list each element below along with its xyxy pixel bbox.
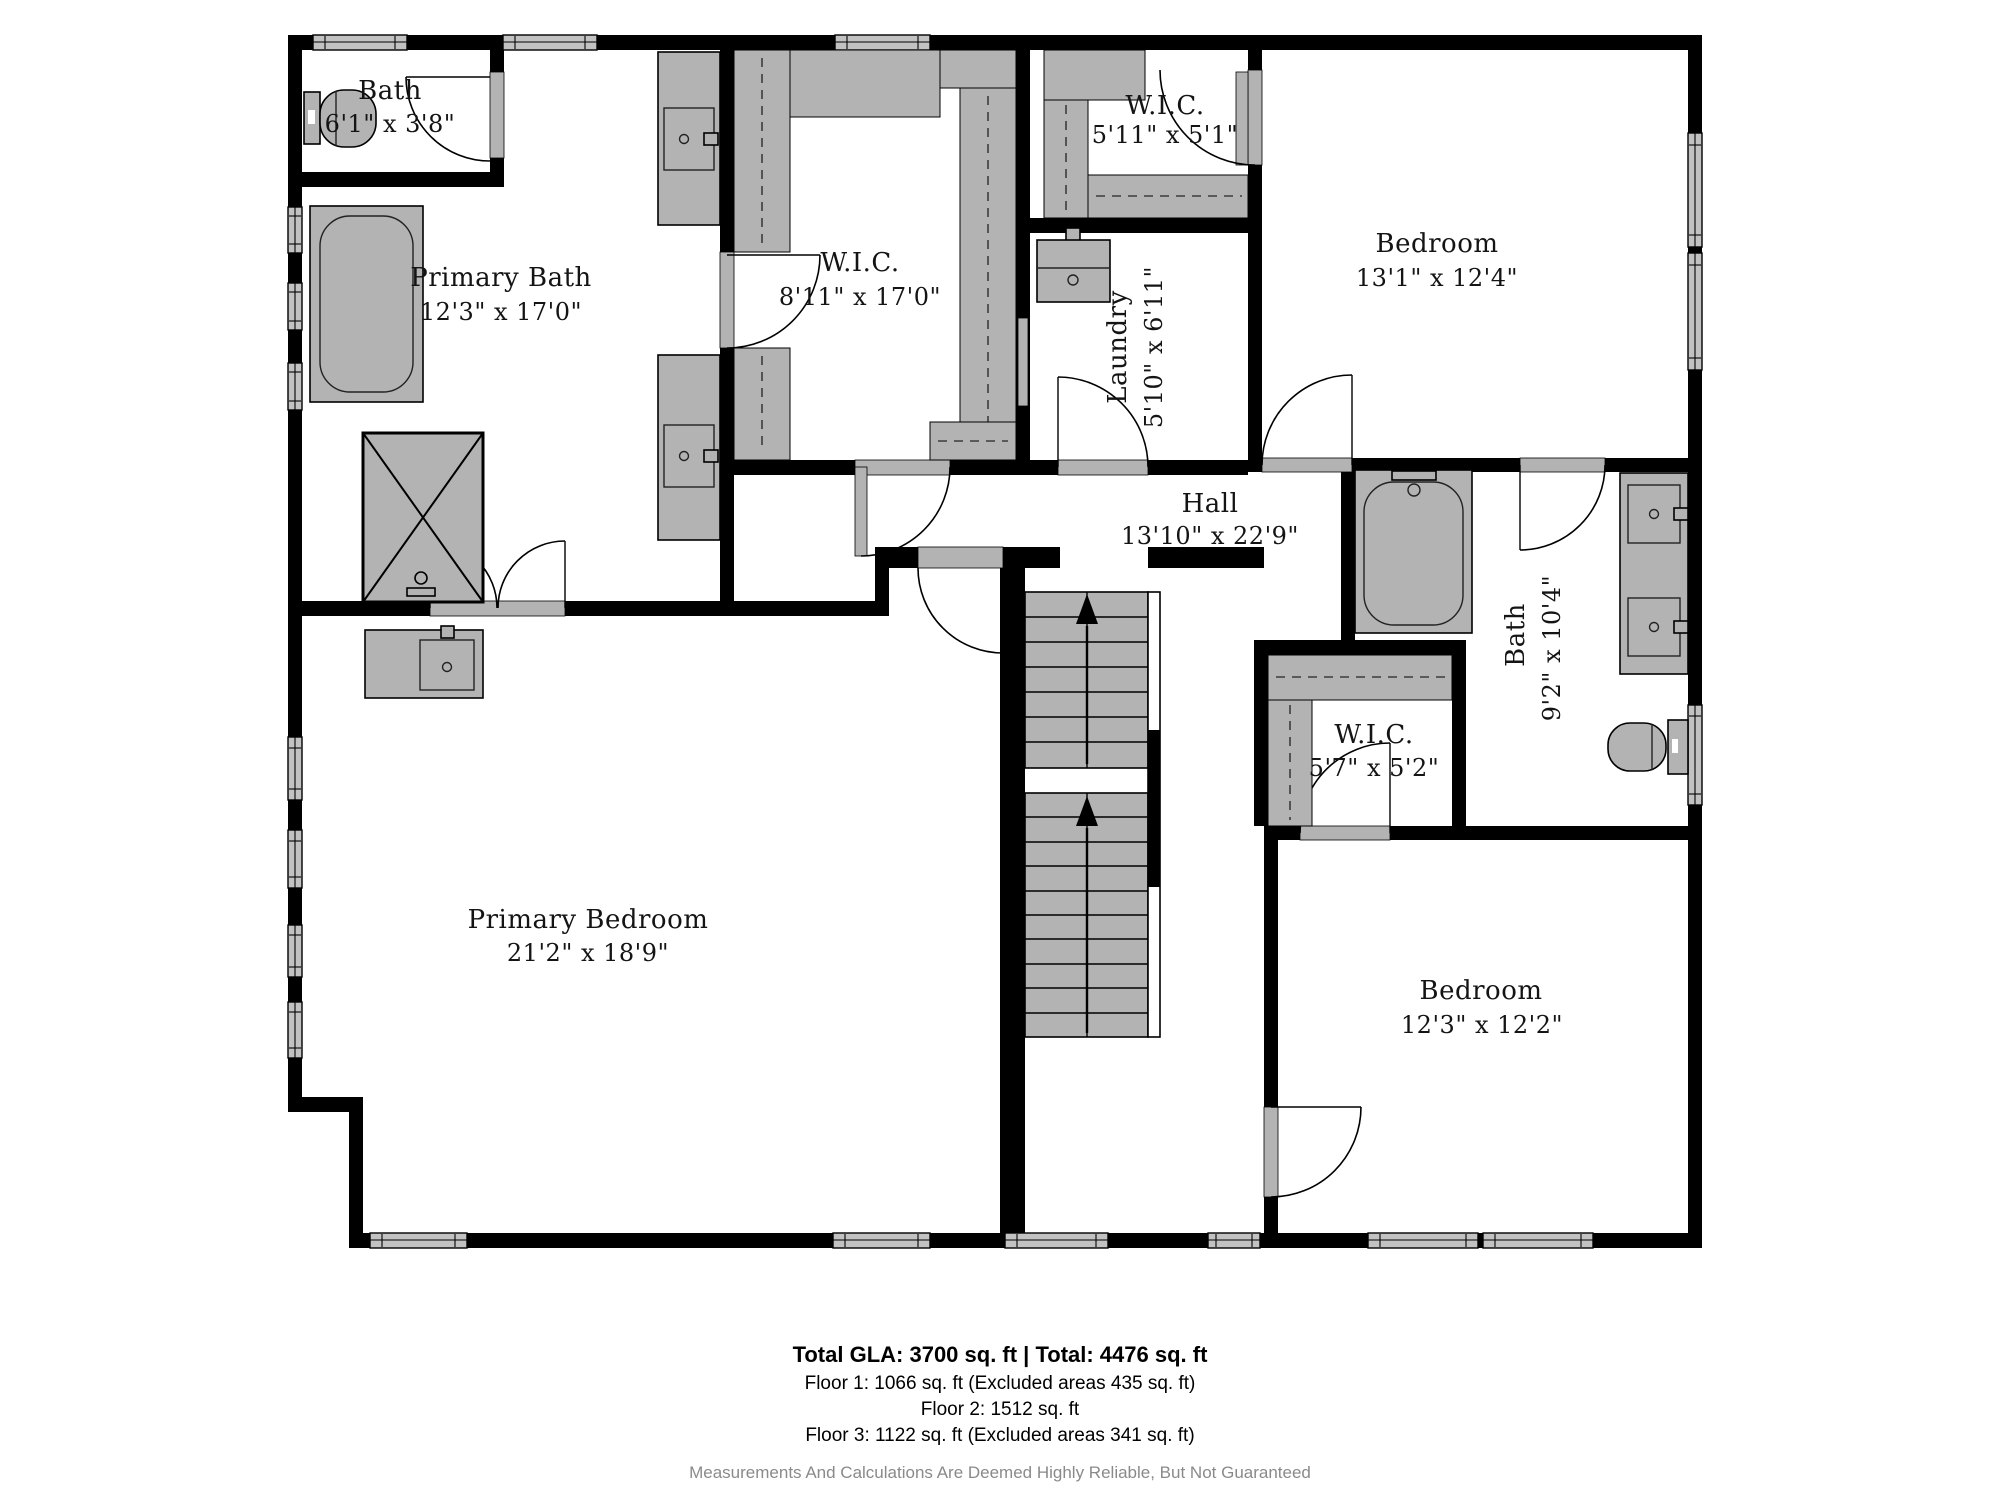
pocket-door-laundry: [1018, 318, 1028, 406]
room-dims-laundry: 5'10" x 6'11": [1140, 266, 1168, 428]
room-dims-hall: 13'10" x 22'9": [1121, 522, 1299, 550]
room-dims-wic2: 5'7" x 5'2": [1309, 754, 1440, 782]
window-icon: [835, 35, 930, 50]
footer-total-gla: Total GLA: 3700 sq. ft | Total: 4476 sq.…: [0, 1342, 2000, 1368]
window-icon: [288, 830, 302, 888]
room-label-wic2: W.I.C.: [1334, 720, 1413, 750]
window-icon: [503, 35, 597, 50]
room-label-bedroom2: Bedroom: [1419, 976, 1542, 1006]
floorplan-svg: Bath 6'1" x 3'8" Primary Bath 12'3" x 17…: [0, 0, 2000, 1500]
room-label-wic-big: W.I.C.: [820, 248, 899, 278]
room-dims-wic-top: 5'11" x 5'1": [1092, 121, 1238, 149]
window-icon: [1688, 133, 1702, 247]
room-label-bath2: Bath: [1501, 603, 1531, 667]
room-dims-bedroom1: 13'1" x 12'4": [1356, 264, 1518, 292]
room-label-laundry: Laundry: [1103, 290, 1133, 404]
window-icon: [1688, 253, 1702, 370]
room-dims-wic-big: 8'11" x 17'0": [779, 283, 941, 311]
window-icon: [313, 35, 407, 50]
room-dims-bath-small: 6'1" x 3'8": [325, 110, 456, 138]
vanity-sink-icon: [658, 52, 720, 225]
footer-floor1: Floor 1: 1066 sq. ft (Excluded areas 435…: [0, 1373, 2000, 1395]
window-icon: [1688, 705, 1702, 805]
stair-flight-lower: [1025, 793, 1148, 1037]
window-icon: [833, 1233, 930, 1248]
room-label-primary-bedroom: Primary Bedroom: [468, 905, 709, 935]
window-icon: [288, 737, 302, 800]
footer-floor2: Floor 2: 1512 sq. ft: [0, 1399, 2000, 1421]
window-icon: [370, 1233, 467, 1248]
window-icon: [288, 925, 302, 977]
window-icon: [288, 1002, 302, 1058]
room-dims-bedroom2: 12'3" x 12'2": [1401, 1011, 1563, 1039]
shower-icon: [363, 433, 483, 602]
vanity-sink-icon: [658, 355, 720, 540]
footer-floor3: Floor 3: 1122 sq. ft (Excluded areas 341…: [0, 1425, 2000, 1447]
toilet-icon: [1608, 720, 1688, 774]
window-icon: [1483, 1233, 1593, 1248]
window-icon: [1208, 1233, 1260, 1248]
room-label-hall: Hall: [1182, 489, 1239, 519]
stair-rail: [1148, 592, 1160, 1037]
window-icon: [1368, 1233, 1478, 1248]
footer-disclaimer: Measurements And Calculations Are Deemed…: [0, 1463, 2000, 1483]
laundry-sink-icon: [1037, 228, 1110, 302]
window-icon: [288, 283, 302, 330]
room-dims-primary-bedroom: 21'2" x 18'9": [507, 939, 669, 967]
room-dims-bath2: 9'2" x 10'4": [1538, 575, 1566, 721]
window-icon: [1005, 1233, 1108, 1248]
room-dims-primary-bath: 12'3" x 17'0": [420, 298, 582, 326]
bathtub-icon: [1355, 470, 1472, 633]
vanity-sink-icon: [1620, 473, 1688, 674]
door-primary-bedroom: [918, 547, 1003, 653]
stair-flight-upper: [1025, 592, 1148, 768]
vanity-sink-icon: [365, 626, 483, 698]
door-bedroom1: [1262, 375, 1352, 472]
door-bedroom2: [1264, 1107, 1361, 1197]
door-wic-hall: [855, 460, 950, 556]
window-icon: [288, 363, 302, 410]
bathtub-icon: [310, 206, 423, 402]
room-label-bedroom1: Bedroom: [1375, 229, 1498, 259]
floorplan-page: { "plan": { "rooms": [ {"name": "Bath", …: [0, 0, 2000, 1500]
door-bath2: [1520, 458, 1605, 550]
room-label-wic-top: W.I.C.: [1125, 91, 1204, 121]
staircase: [1025, 592, 1160, 1037]
room-label-primary-bath: Primary Bath: [410, 263, 592, 293]
footer: Total GLA: 3700 sq. ft | Total: 4476 sq.…: [0, 1342, 2000, 1483]
window-icon: [288, 207, 302, 253]
room-label-bath-small: Bath: [358, 76, 422, 106]
